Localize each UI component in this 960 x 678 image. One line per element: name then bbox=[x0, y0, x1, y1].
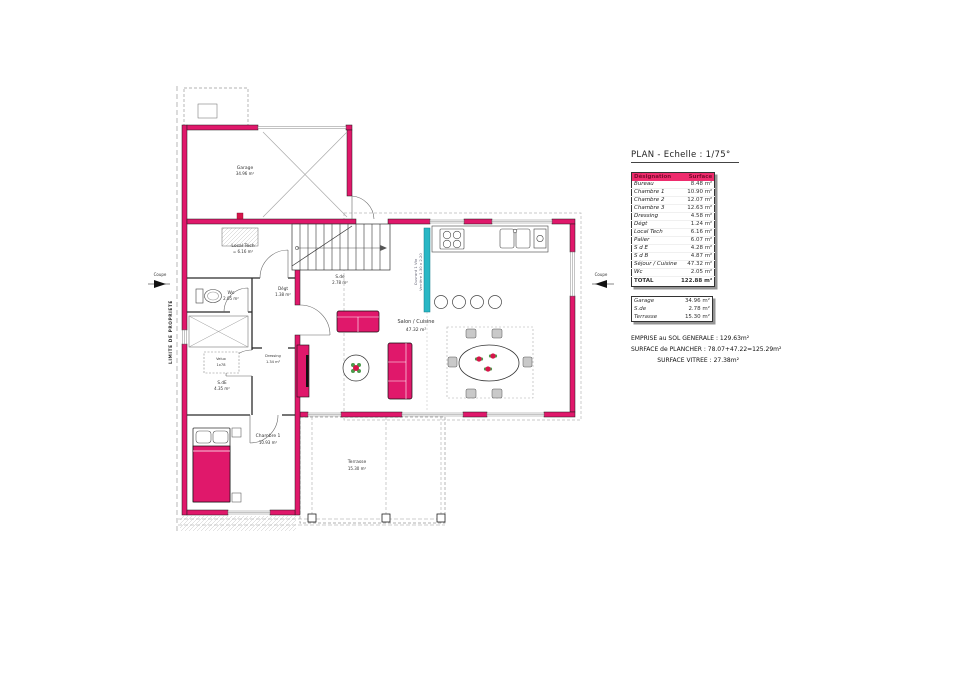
table-row: Séjour / Cuisine47.32 m² bbox=[632, 261, 715, 269]
pillow bbox=[196, 431, 211, 443]
glazed-bay: Ouvrant 1 Vtx Verrière 1.30 x 2.20 bbox=[413, 228, 430, 312]
table-row: Bureau8.48 m² bbox=[632, 181, 715, 189]
room-area-sde: 4.35 m² bbox=[214, 386, 230, 391]
boiler-marker bbox=[237, 213, 243, 219]
room-area-degt: 1.38 m² bbox=[275, 292, 291, 297]
sink-basin bbox=[516, 229, 530, 248]
living-room-furniture bbox=[297, 311, 412, 399]
col-surface: Surface bbox=[679, 173, 715, 182]
table-row: Chambre 312.63 m² bbox=[632, 205, 715, 213]
coupe-label-right: Coupe bbox=[595, 272, 608, 277]
bar-stools bbox=[435, 296, 502, 309]
sink-basin bbox=[500, 229, 514, 248]
property-and-roof-dashed-lines bbox=[177, 86, 581, 534]
table-row: Dégt1.24 m² bbox=[632, 221, 715, 229]
table-total-row: TOTAL 122.88 m² bbox=[632, 277, 715, 287]
staircase bbox=[292, 224, 390, 270]
section-markers: Coupe Coupe bbox=[148, 272, 614, 288]
toilet-bowl bbox=[205, 290, 222, 303]
degt-door bbox=[260, 250, 288, 278]
terrace-post bbox=[437, 514, 445, 522]
table-row: Terrasse15.30 m² bbox=[632, 313, 713, 322]
bedroom-furniture bbox=[193, 428, 241, 502]
velux-size: 1x78 bbox=[217, 363, 227, 367]
room-area-local-tech: = 6.16 m² bbox=[233, 249, 254, 254]
table-row: S.de2.78 m² bbox=[632, 305, 713, 313]
summary-plancher: SURFACE de PLANCHER : 78.07+47.22=125.29… bbox=[631, 344, 739, 355]
room-label-terrasse: Terrasse bbox=[347, 459, 367, 465]
room-area-chambre1: 10.93 m² bbox=[259, 440, 278, 445]
glazing-note: Verrière 1.30 x 2.20 bbox=[418, 253, 423, 291]
table-row: Palier6.07 m² bbox=[632, 237, 715, 245]
garage-door bbox=[258, 127, 346, 129]
room-label-sde-stair: S.de bbox=[335, 274, 345, 279]
table-row: Chambre 110.90 m² bbox=[632, 189, 715, 197]
legend-panel: PLAN - Echelle : 1/75° Désignation Surfa… bbox=[631, 150, 739, 366]
room-label-salon: Salon / Cuisine bbox=[397, 319, 434, 325]
room-label-chambre1: Chambre 1 bbox=[256, 433, 281, 439]
table-row: Garage34.96 m² bbox=[632, 297, 713, 306]
floor-plan-sheet: Ouvrant 1 Vtx Verrière 1.30 x 2.20 bbox=[0, 0, 960, 678]
total-value: 122.88 m² bbox=[679, 277, 715, 287]
table-row: Wc2.05 m² bbox=[632, 269, 715, 277]
dining-set bbox=[447, 327, 533, 398]
surface-table: Désignation Surface Bureau8.48 m² Chambr… bbox=[631, 172, 715, 287]
salon-door bbox=[300, 305, 330, 335]
tv-screen bbox=[306, 355, 309, 387]
surface-table-header: Désignation Surface bbox=[632, 173, 715, 182]
room-labels: Garage 34.96 m² Local Tech = 6.16 m² Wc … bbox=[168, 165, 435, 471]
table-row: Local Tech6.16 m² bbox=[632, 229, 715, 237]
coupe-arrow-right bbox=[595, 280, 607, 288]
toilet-tank bbox=[196, 289, 203, 303]
garage-door-cross bbox=[263, 132, 347, 217]
room-label-degt: Dégt bbox=[278, 286, 288, 291]
pillow bbox=[213, 431, 228, 443]
terrace-post bbox=[308, 514, 316, 522]
room-area-salon: 47.32 m² bbox=[406, 327, 427, 333]
plan-title: PLAN - Echelle : 1/75° bbox=[631, 150, 739, 163]
dining-table bbox=[459, 345, 519, 381]
room-area-sde-stair: 2.78 m² bbox=[332, 280, 348, 285]
room-area-dressing: 1.34 m² bbox=[266, 360, 281, 364]
col-designation: Désignation bbox=[632, 173, 679, 182]
ground-hatch bbox=[180, 516, 296, 531]
sanitary-fixtures bbox=[189, 213, 258, 373]
annex-surface-table: Garage34.96 m² S.de2.78 m² Terrasse15.30… bbox=[631, 296, 713, 322]
bed-cover bbox=[193, 446, 230, 502]
velux-label: Velux bbox=[216, 357, 227, 361]
kitchen-counter bbox=[432, 226, 548, 252]
terrace-post bbox=[382, 514, 390, 522]
table-row: Dressing4.58 m² bbox=[632, 213, 715, 221]
summary-emprise: EMPRISE au SOL GENERALE : 129.63m² bbox=[631, 333, 739, 344]
nightstand bbox=[232, 428, 241, 437]
coupe-label-left: Coupe bbox=[154, 272, 167, 277]
table-row: S d E4.28 m² bbox=[632, 245, 715, 253]
table-row: S d B4.87 m² bbox=[632, 253, 715, 261]
garage-access-door bbox=[352, 196, 374, 219]
summary-vitree: SURFACE VITREE : 27.38m² bbox=[631, 355, 739, 366]
room-area-terrasse: 15.30 m² bbox=[348, 466, 367, 471]
surface-summary: EMPRISE au SOL GENERALE : 129.63m² SURFA… bbox=[631, 333, 739, 366]
floor-plan-drawing: Ouvrant 1 Vtx Verrière 1.30 x 2.20 bbox=[0, 0, 960, 678]
room-label-dressing: Dressing bbox=[265, 354, 281, 358]
faucet bbox=[513, 229, 517, 233]
nightstand bbox=[232, 493, 241, 502]
total-label: TOTAL bbox=[632, 277, 679, 287]
sofa bbox=[388, 343, 412, 399]
room-area-garage: 34.96 m² bbox=[236, 171, 255, 176]
table-row: Chambre 212.07 m² bbox=[632, 197, 715, 205]
room-label-sde: S.dE bbox=[217, 380, 227, 385]
coupe-arrow-left bbox=[154, 280, 166, 288]
room-area-wc: 2.05 m² bbox=[223, 296, 239, 301]
property-limit-label: LIMITE DE PROPRIETE bbox=[168, 300, 174, 364]
